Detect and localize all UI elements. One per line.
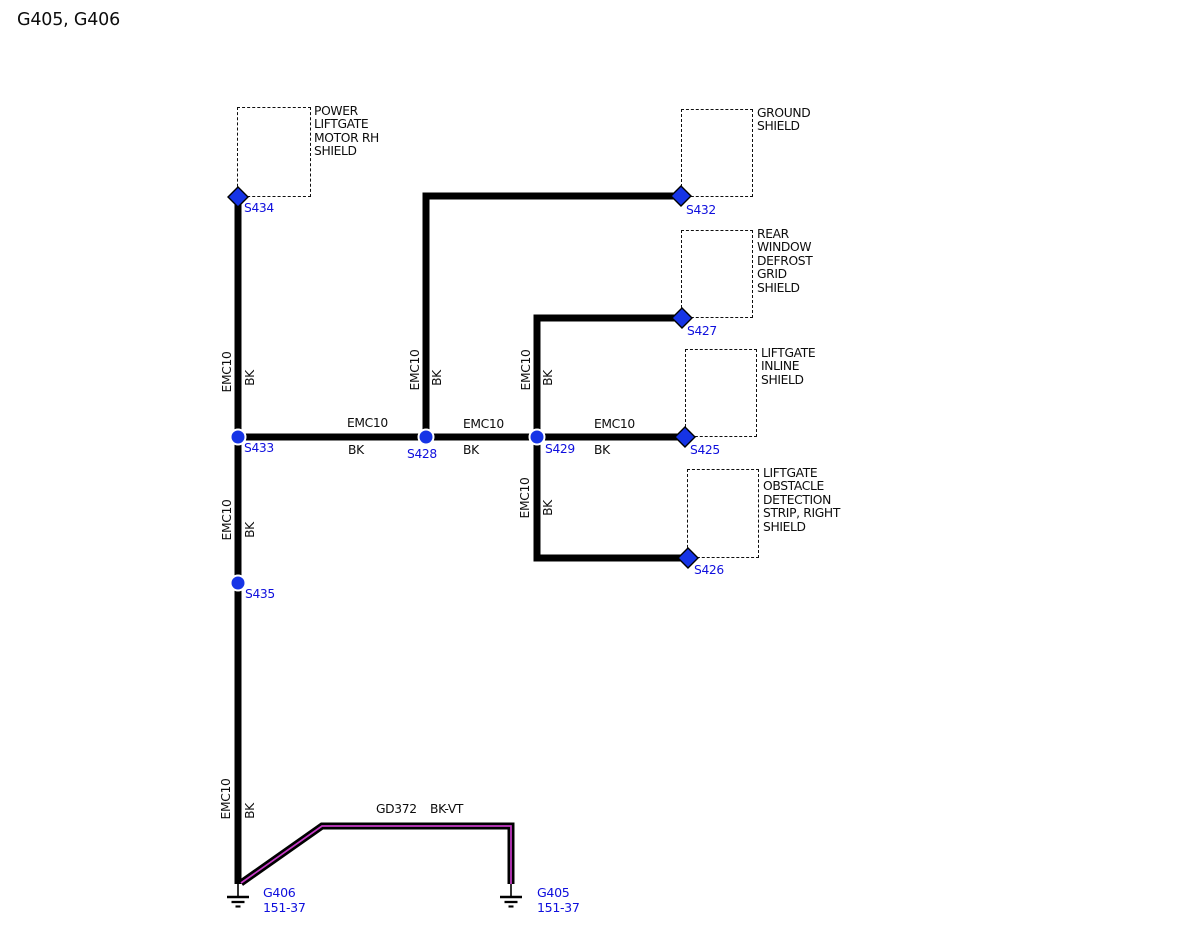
wire-label-bk: BK [348, 443, 364, 457]
wire-label-bk: BK [541, 500, 555, 516]
splice-label-s432: S432 [686, 203, 716, 217]
shield-label-ground: GROUND SHIELD [757, 107, 810, 134]
wire-label-bk: BK [463, 443, 479, 457]
wire-geometry [0, 0, 1200, 927]
shield-label-liftgate-inline: LIFTGATE INLINE SHIELD [761, 347, 815, 387]
wire-gd372-violet-stripe [241, 826, 511, 884]
splice-dot-s428[interactable] [419, 430, 434, 445]
wire-label-gd372: GD372 [376, 802, 417, 816]
wire-label-emc10: EMC10 [219, 779, 233, 820]
splice-dot-s429[interactable] [530, 430, 545, 445]
wire-label-emc10: EMC10 [594, 417, 635, 431]
wire-label-emc10: EMC10 [519, 350, 533, 391]
wire-label-bk: BK [243, 803, 257, 819]
wire-label-bk-vt: BK-VT [430, 802, 463, 816]
wire-label-bk: BK [541, 370, 555, 386]
splice-label-s429: S429 [545, 442, 575, 456]
splice-label-s427: S427 [687, 324, 717, 338]
splice-label-s434: S434 [244, 201, 274, 215]
wire-label-emc10: EMC10 [220, 500, 234, 541]
ground-label-g406: G406 151-37 [263, 886, 306, 915]
ground-label-g405: G405 151-37 [537, 886, 580, 915]
wire-label-bk: BK [594, 443, 610, 457]
splice-label-s433: S433 [244, 441, 274, 455]
wire-label-emc10: EMC10 [347, 416, 388, 430]
splice-dot-s435[interactable] [231, 576, 246, 591]
shield-label-power-liftgate: POWER LIFTGATE MOTOR RH SHIELD [314, 105, 379, 159]
ground-symbol-g406 [227, 884, 249, 907]
wire-label-emc10: EMC10 [408, 350, 422, 391]
wire-label-emc10: EMC10 [220, 352, 234, 393]
splice-label-s435: S435 [245, 587, 275, 601]
wiring-diagram-page: G405, G406 [0, 0, 1200, 927]
splice-label-s428: S428 [407, 447, 437, 461]
splice-label-s426: S426 [694, 563, 724, 577]
page-title: G405, G406 [17, 10, 120, 30]
wire-label-emc10: EMC10 [463, 417, 504, 431]
wire-label-bk: BK [243, 522, 257, 538]
wire-label-emc10: EMC10 [518, 478, 532, 519]
wire-label-bk: BK [430, 370, 444, 386]
shield-label-rear-window: REAR WINDOW DEFROST GRID SHIELD [757, 228, 812, 295]
ground-symbol-g405 [500, 884, 522, 907]
splice-label-s425: S425 [690, 443, 720, 457]
wire-label-bk: BK [243, 370, 257, 386]
shield-label-liftgate-obstacle: LIFTGATE OBSTACLE DETECTION STRIP, RIGHT… [763, 467, 840, 534]
